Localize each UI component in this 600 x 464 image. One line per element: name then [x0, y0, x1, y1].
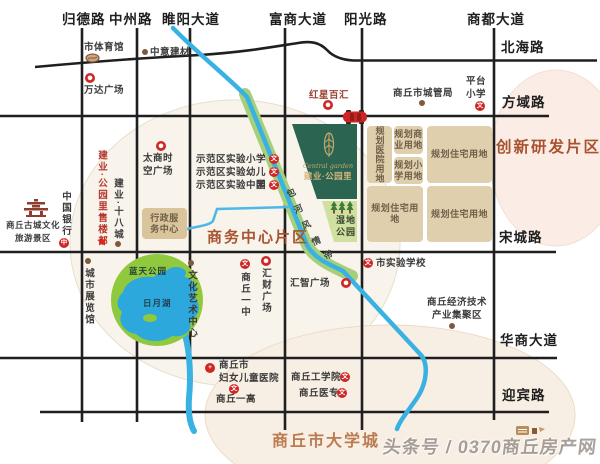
district-innovation: 创新研发片区	[496, 140, 600, 156]
plaza-icon	[156, 141, 166, 151]
block-admin-service-center: 行政服 务中心	[142, 208, 187, 239]
project-script-name: Central garden	[299, 163, 357, 170]
poi-women-children-hospital: 商丘市 妇女儿童医院	[219, 359, 279, 385]
poi-dot-icon	[142, 49, 148, 55]
watermark-logo	[515, 420, 553, 438]
poi-demo-primary-school: 示范区实验小学	[194, 153, 266, 166]
poi-taishang-plaza: 太商时 空广场	[141, 152, 175, 178]
school-icon: 文	[269, 180, 279, 190]
block-planned-hospital: 规划医院用地	[367, 126, 392, 183]
road-label-zhongzhou: 中州路	[109, 13, 153, 27]
watermark-text: 头条号 / 0370商丘房产网	[382, 438, 598, 456]
district-business-center: 商务中心片区	[207, 230, 309, 245]
poi-culture-art-center: 文化艺术中心	[186, 270, 196, 339]
project-name: 建业·公园里	[298, 172, 358, 181]
road-label-yingbin: 迎宾路	[502, 389, 546, 403]
poi-zhongyi-building-materials: 中意建材	[150, 46, 190, 59]
block-planned-school: 规划小 学用地	[394, 157, 423, 184]
poi-dot-icon	[85, 258, 91, 264]
poi-sales-office: 建业·公园里售楼部	[96, 150, 106, 247]
block-planned-business: 规划商 业用地	[394, 126, 423, 154]
poi-dot-icon	[115, 241, 121, 247]
road-label-songcheng: 宋城路	[499, 231, 543, 245]
riyue-lake-label: 日月湖	[143, 299, 172, 308]
school-icon: 文	[337, 388, 347, 398]
plaza-icon	[261, 256, 271, 266]
road-label-suiyang: 睢阳大道	[162, 13, 220, 27]
poi-no1-middle-school: 商丘一中	[239, 272, 249, 318]
road-label-yangguang: 阳光路	[344, 13, 388, 27]
school-icon: 文	[340, 372, 350, 382]
block-planned-residential-3: 规划住宅用地	[427, 186, 492, 242]
poi-institute-of-technology: 商丘工学院	[291, 371, 341, 384]
poi-demo-middle-school: 示范区实验中学	[194, 179, 266, 192]
plaza-icon	[341, 278, 351, 288]
school-icon: 文	[363, 258, 373, 268]
poi-city-management-bureau: 商丘市城管局	[393, 87, 453, 100]
poi-huicai-plaza: 汇财广场	[260, 268, 270, 314]
stadium-icon	[85, 53, 100, 63]
block-planned-residential-2: 规划住宅用地	[367, 186, 423, 242]
poi-medical-college: 商丘医专	[299, 387, 339, 400]
road-label-huashang: 华商大道	[500, 334, 558, 348]
road-label-fushang: 富商大道	[269, 13, 327, 27]
plaza-icon	[323, 100, 333, 110]
poi-city-exhibition-hall: 城市展览馆	[83, 268, 93, 326]
lake-inlet	[166, 267, 186, 279]
poi-ancient-city-scenic-area: 商丘古城文化 旅游景区	[0, 219, 66, 245]
wetland-trees-icon	[330, 200, 356, 214]
plaza-icon	[85, 73, 95, 83]
hospital-cross-icon: +	[205, 363, 215, 373]
poi-dot-icon	[188, 260, 194, 266]
lake-island	[143, 314, 157, 322]
road-label-shangdu: 商都大道	[467, 13, 525, 27]
wetland-park-label: 湿地 公园	[336, 214, 356, 238]
poi-dot-icon	[449, 323, 455, 329]
road-label-beihai: 北海路	[501, 41, 545, 55]
district-university-town: 商丘市大学城	[272, 434, 380, 450]
school-icon: 文	[269, 167, 279, 177]
lantian-park-label: 蓝天公园	[129, 267, 167, 276]
school-icon: 文	[240, 259, 250, 269]
block-planned-residential-1: 规划住宅用地	[427, 126, 492, 183]
poi-huizhi-plaza: 汇智广场	[290, 277, 330, 290]
project-leaf-icon	[322, 131, 336, 159]
poi-dot-icon	[419, 100, 425, 106]
road-label-fangyu: 方域路	[502, 96, 546, 110]
school-icon: 文	[269, 154, 279, 164]
school-icon: 文	[475, 101, 485, 111]
car-icon	[341, 109, 369, 125]
poi-experimental-school: 市实验学校	[376, 257, 426, 270]
poi-jianye-18-city: 建业·十八城	[112, 178, 122, 241]
location-map: 归德路 中州路 睢阳大道 富商大道 阳光路 商都大道 北海路 方域路 宋城路 华…	[0, 0, 600, 464]
poi-economic-tech-cluster: 商丘经济技术 产业集聚区	[424, 296, 490, 322]
poi-no1-high-school: 商丘一高	[216, 393, 256, 406]
star-icon: ★	[97, 237, 107, 248]
road-label-guidelu: 归德路	[62, 13, 106, 27]
pagoda-icon	[22, 199, 50, 217]
poi-wanda-plaza: 万达广场	[84, 84, 124, 97]
poi-pingtai-primary-school: 平台 小学	[466, 75, 486, 101]
